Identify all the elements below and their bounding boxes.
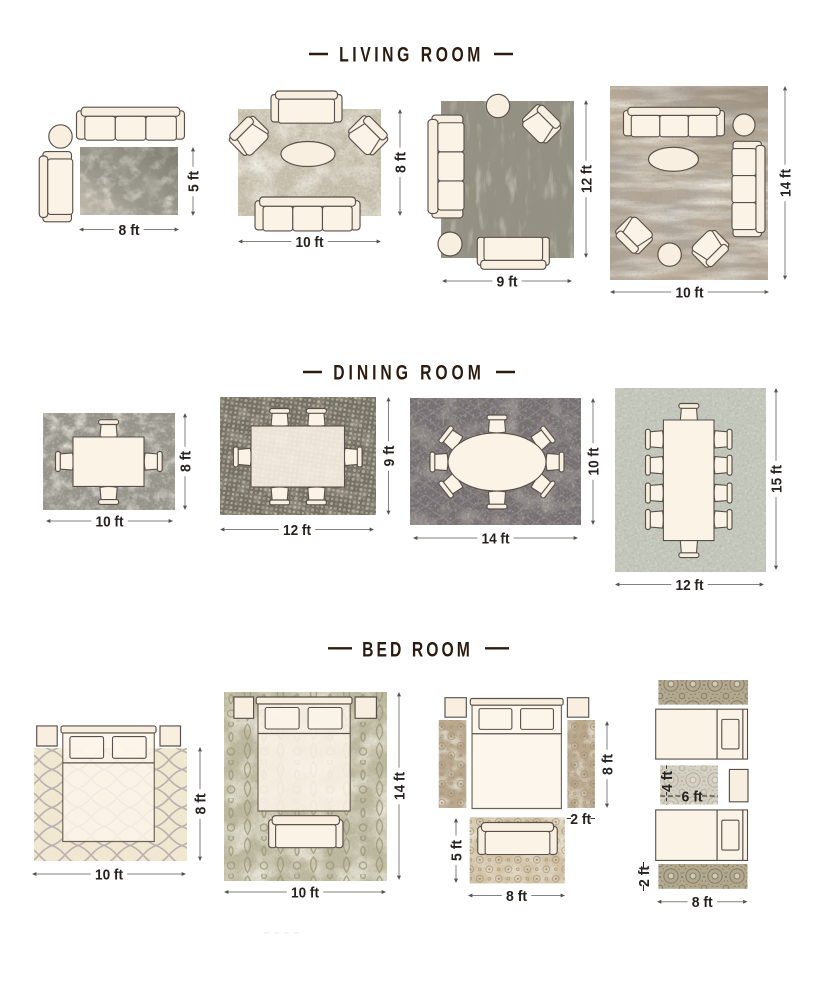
svg-text:10 ft: 10 ft [291,884,320,900]
svg-text:6 ft: 6 ft [682,788,704,804]
svg-text:8 ft: 8 ft [599,753,615,775]
svg-text:10 ft: 10 ft [95,866,124,882]
svg-text:8 ft: 8 ft [692,894,714,910]
svg-text:5 ft: 5 ft [448,839,464,861]
svg-text:10 ft: 10 ft [676,284,705,300]
svg-text:10 ft: 10 ft [296,234,325,250]
svg-text:10 ft: 10 ft [585,447,601,476]
svg-text:2 ft: 2 ft [570,811,592,827]
svg-text:5 ft: 5 ft [185,170,201,192]
svg-text:10 ft: 10 ft [96,513,125,529]
svg-text:12 ft: 12 ft [578,164,594,193]
svg-text:12 ft: 12 ft [676,577,705,593]
svg-text:4 ft: 4 ft [659,770,675,792]
svg-text:14 ft: 14 ft [391,771,407,800]
svg-text:8 ft: 8 ft [192,793,208,815]
svg-text:LIVING ROOM: LIVING ROOM [339,42,484,66]
svg-text:9 ft: 9 ft [381,445,397,467]
svg-text:8 ft: 8 ft [119,222,141,238]
svg-text:BED ROOM: BED ROOM [362,637,473,661]
svg-text:9 ft: 9 ft [497,273,519,289]
svg-text:12 ft: 12 ft [283,522,312,538]
svg-text:8 ft: 8 ft [506,888,528,904]
svg-text:8 ft: 8 ft [177,450,193,472]
svg-text:15 ft: 15 ft [768,464,784,493]
svg-text:DINING ROOM: DINING ROOM [333,360,484,384]
svg-text:14 ft: 14 ft [777,168,793,197]
svg-text:8 ft: 8 ft [392,151,408,173]
svg-text:2 ft: 2 ft [636,865,652,887]
svg-text:14 ft: 14 ft [482,530,511,546]
